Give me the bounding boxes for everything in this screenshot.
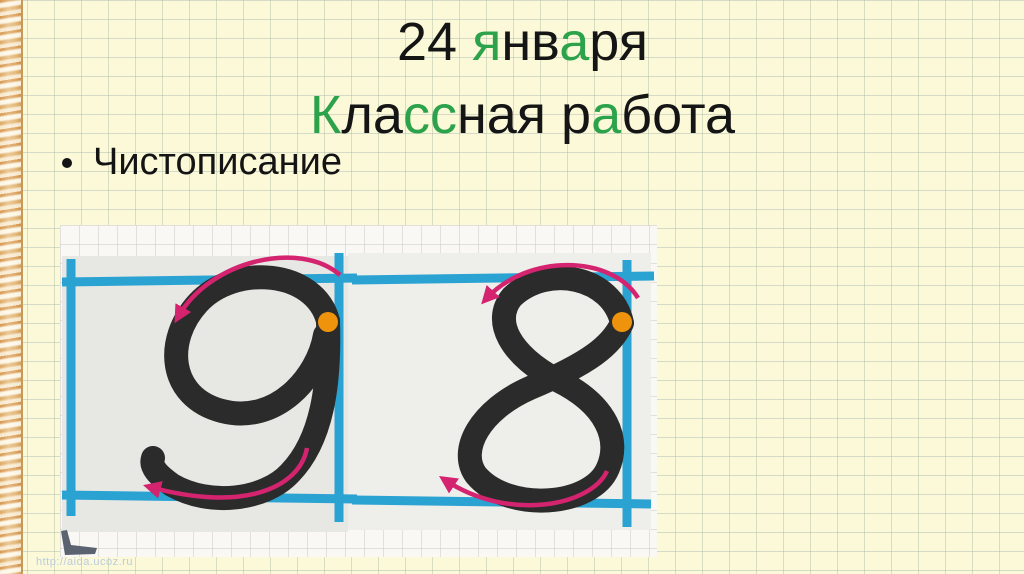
title-date-line: 24 января bbox=[21, 6, 1024, 79]
slide-title: 24 января Классная работа bbox=[21, 6, 1024, 152]
handwriting-practice-image bbox=[60, 225, 657, 557]
decorative-left-border bbox=[0, 0, 23, 574]
bullet-marker bbox=[62, 158, 72, 168]
bullet-item-text: Чистописание bbox=[93, 141, 342, 184]
bullet-item: Чистописание bbox=[62, 141, 342, 184]
start-dot-nine bbox=[318, 312, 338, 332]
digits-9-8-writing-diagram bbox=[60, 225, 657, 557]
watermark-url: http://aida.ucoz.ru bbox=[36, 556, 133, 568]
start-dot-eight bbox=[612, 312, 632, 332]
presentation-slide[interactable]: 24 января Классная работа Чистописание bbox=[0, 0, 1024, 574]
